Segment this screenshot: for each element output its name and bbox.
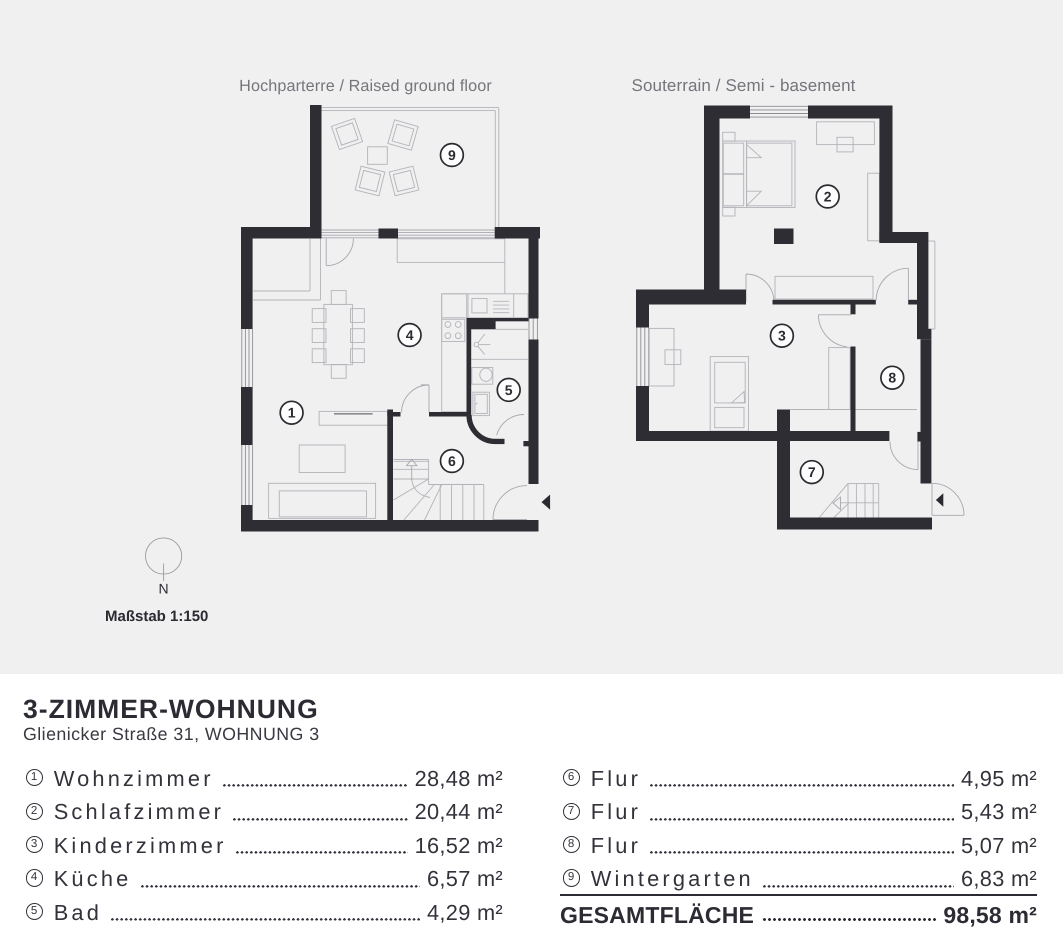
svg-text:N: N [159,581,169,597]
svg-text:4: 4 [406,327,414,343]
svg-text:7: 7 [808,464,816,480]
svg-text:Maßstab 1:150: Maßstab 1:150 [105,608,208,625]
svg-text:3: 3 [778,328,786,344]
svg-text:1: 1 [288,405,296,421]
svg-text:6: 6 [448,453,456,469]
svg-text:Souterrain / Semi - basement: Souterrain / Semi - basement [632,76,856,95]
svg-text:Hochparterre / Raised ground f: Hochparterre / Raised ground floor [239,77,492,95]
svg-text:9: 9 [448,147,456,163]
svg-text:2: 2 [824,189,832,205]
svg-text:5: 5 [505,382,513,398]
svg-text:8: 8 [888,370,896,386]
